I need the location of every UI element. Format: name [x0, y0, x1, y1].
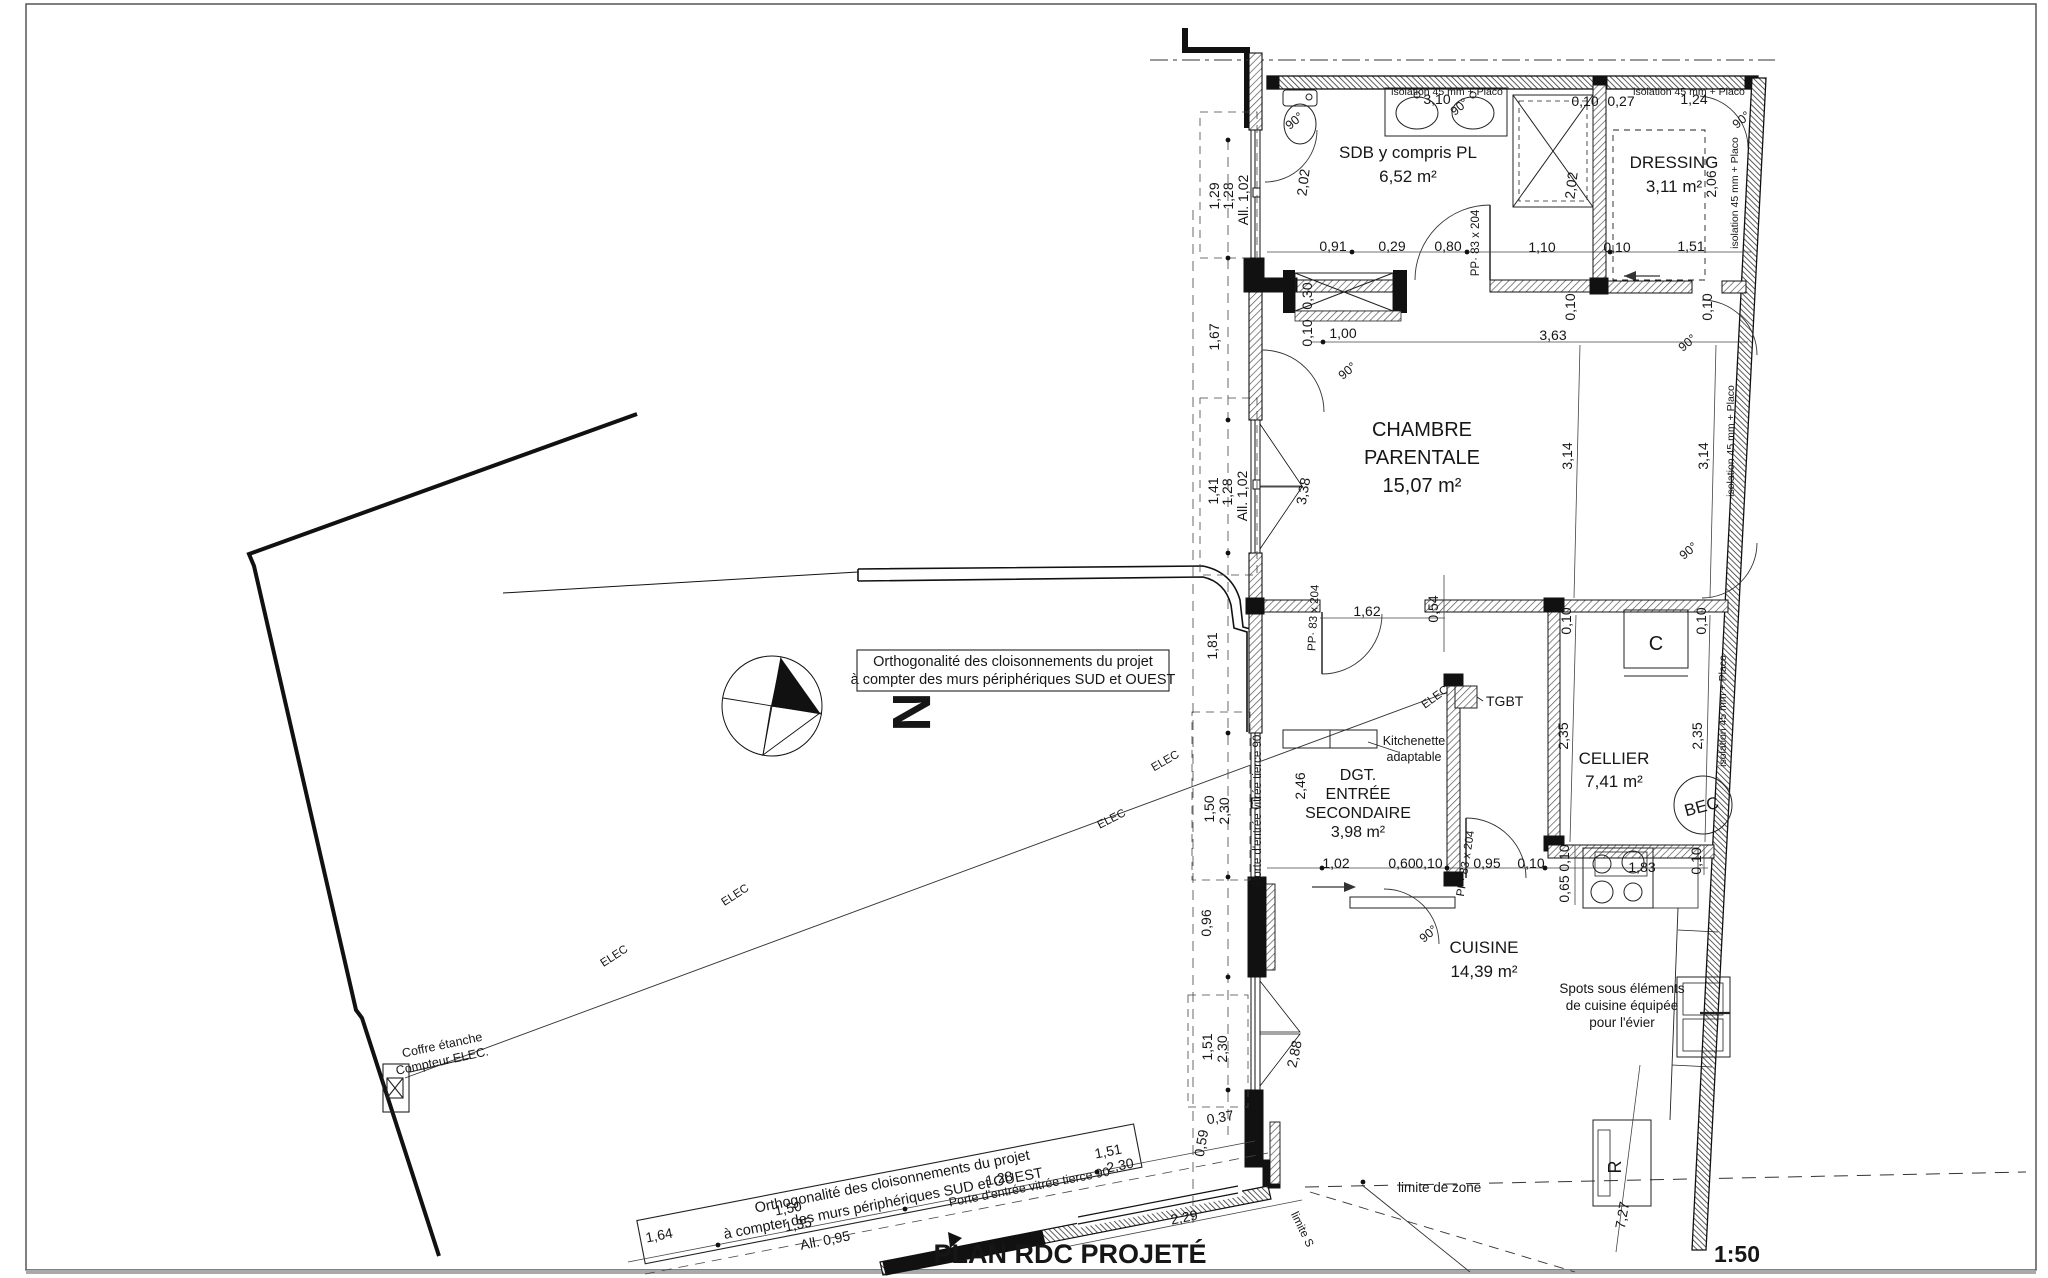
dimension-label: 0,95	[1473, 855, 1500, 871]
dimension-label: 1,00	[1329, 325, 1356, 341]
dimension-label: 2,35	[1555, 722, 1571, 749]
insulation-note: isolation 45 mm + Placo	[1729, 137, 1741, 249]
dimension-label: 1,51	[1677, 238, 1704, 254]
dimension-label: 0,65	[1556, 875, 1572, 902]
dimension-label: 0,10	[1517, 855, 1544, 871]
room-label: DGT.	[1340, 767, 1376, 784]
dimension-label: 1,62	[1353, 603, 1380, 619]
dimension-label: 0,10	[1603, 239, 1630, 255]
insulation-note: isolation 45 mm + Placo	[1725, 385, 1737, 497]
dimension-label: 1,28	[1219, 478, 1235, 505]
dimension-label: 2,35	[1689, 722, 1705, 749]
room-label: 3,98 m²	[1331, 824, 1386, 841]
room-label: DRESSING	[1630, 153, 1719, 172]
room-label: 7,41 m²	[1585, 772, 1643, 791]
entry-door-note: Porte d'entrée vitrée tierce 90	[1252, 735, 1264, 886]
kitchenette-note: Kitchenette	[1383, 734, 1446, 748]
kitchenette-note: adaptable	[1387, 750, 1442, 764]
room-label: PARENTALE	[1364, 447, 1480, 469]
zone-limit-label: limite de zone	[1398, 1180, 1481, 1195]
room-label: 3,11 m²	[1646, 177, 1703, 196]
plan-title: PLAN RDC PROJETÉ	[933, 1238, 1206, 1269]
dimension-label: 1,83	[1628, 859, 1655, 875]
dimension-label: 0,91	[1319, 238, 1346, 254]
dimension-label: 0,10	[1699, 293, 1715, 320]
spots-note: pour l'évier	[1589, 1015, 1655, 1030]
fridge-label: R	[1605, 1161, 1625, 1174]
room-label: CUISINE	[1450, 938, 1519, 957]
dimension-label: All. 1,02	[1235, 174, 1251, 225]
dimension-label: 0,29	[1378, 238, 1405, 254]
dimension-label: 1,28	[1220, 182, 1236, 209]
room-label: CELLIER	[1579, 749, 1650, 768]
dimension-label: 0,10	[1556, 844, 1572, 871]
room-label: 14,39 m²	[1450, 962, 1517, 981]
dimension-label: 1,10	[1528, 239, 1555, 255]
dimension-label: 1,50	[1201, 795, 1217, 822]
tgbt-label: TGBT	[1486, 693, 1524, 709]
room-label: 15,07 m²	[1383, 475, 1462, 497]
dimension-label: 0,10	[1688, 847, 1704, 874]
dimension-label: 0,10	[1562, 293, 1578, 320]
insulation-note: isolation 45 mm + Placo	[1391, 86, 1503, 98]
room-label: SECONDAIRE	[1305, 805, 1411, 822]
floor-plan-page: 3,100,100,271,242,022,060,910,290,801,10…	[0, 0, 2048, 1278]
dimension-label: 1,67	[1206, 323, 1222, 350]
dimension-label: 0,10	[1571, 93, 1598, 109]
dimension-label: 1,81	[1204, 632, 1220, 659]
room-label: 6,52 m²	[1379, 167, 1437, 186]
dimension-label: All. 1,02	[1234, 470, 1250, 521]
room-label: SDB y compris PL	[1339, 143, 1477, 162]
dimension-label: 3,63	[1539, 327, 1566, 343]
dimension-label: 0,10	[1693, 607, 1709, 634]
door-size-note: PP· 83 x 204	[1470, 209, 1482, 276]
room-label: ENTRÉE	[1326, 784, 1391, 803]
dimension-label: 3,14	[1559, 442, 1575, 469]
dimension-label: 1,51	[1199, 1033, 1215, 1060]
note-orthogonality-1: Orthogonalité des cloisonnements du proj…	[873, 654, 1153, 670]
insulation-note: isolation 45 mm + Placo	[1717, 655, 1729, 767]
dimension-label: 2,30	[1214, 1035, 1230, 1062]
dimension-label: 2,06	[1703, 170, 1719, 197]
dimension-label: 0,10	[1299, 319, 1315, 346]
dimension-label: 0,30	[1299, 282, 1315, 309]
dimension-label: 0,10	[1558, 607, 1574, 634]
dimension-label: 1,02	[1322, 855, 1349, 871]
dimension-label: 0,27	[1607, 93, 1634, 109]
floor-plan-svg: 3,100,100,271,242,022,060,910,290,801,10…	[0, 0, 2048, 1278]
boiler-label: C	[1649, 633, 1663, 655]
dimension-label: 2,30	[1216, 797, 1232, 824]
dimension-label: 0,96	[1198, 909, 1214, 936]
north-letter: N	[881, 693, 941, 732]
dimension-label: 2,02	[1293, 168, 1312, 197]
scale-label: 1:50	[1714, 1241, 1760, 1267]
dimension-label: 0,54	[1425, 595, 1441, 622]
dimension-label: 3,14	[1695, 442, 1711, 469]
dimension-label: 2,02	[1561, 171, 1580, 200]
room-label: CHAMBRE	[1372, 419, 1472, 441]
insulation-note: isolation 45 mm + Placo	[1633, 86, 1745, 98]
dimension-label: 2,46	[1292, 772, 1308, 799]
spots-note: de cuisine équipée	[1566, 998, 1679, 1013]
note-orthogonality-1: à compter des murs périphériques SUD et …	[851, 672, 1176, 688]
spots-note: Spots sous éléments	[1559, 981, 1685, 996]
dimension-label: 0,60	[1388, 855, 1415, 871]
dimension-label: 0,80	[1434, 238, 1461, 254]
dimension-label: 0,10	[1415, 855, 1442, 871]
